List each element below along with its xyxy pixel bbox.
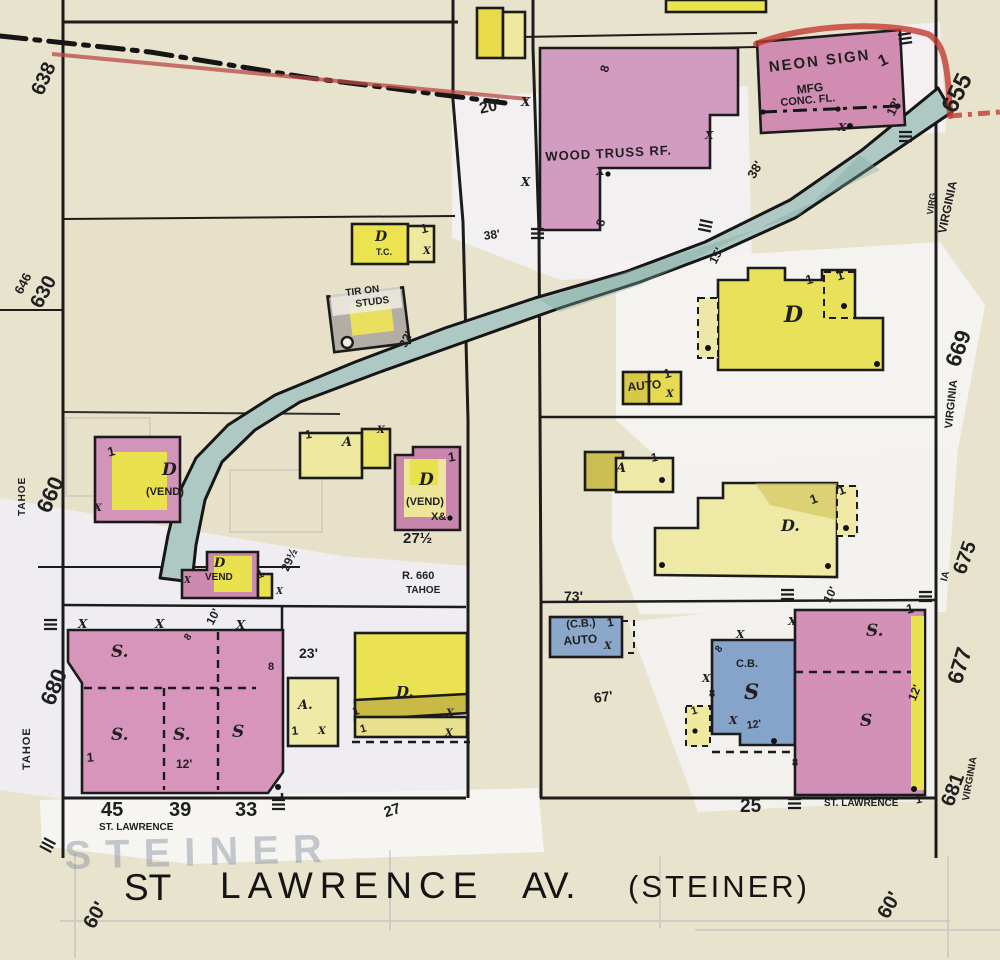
street-name-st: ST — [124, 869, 171, 906]
dim-12ft: 12' — [746, 719, 762, 732]
x-mark: X — [838, 122, 847, 133]
cb-auto-label: (C.B.) — [566, 618, 596, 631]
auto-label: AUTO — [627, 378, 662, 393]
tc-label: T.C. — [376, 248, 392, 257]
x-mark: X — [377, 426, 385, 436]
auto-house-letter: A — [616, 462, 626, 475]
address-33: 33 — [235, 800, 257, 820]
dim-23ft: 23' — [299, 646, 318, 660]
x-mark: X — [318, 727, 326, 737]
store-letter: S. — [111, 727, 129, 744]
x-mark: X — [702, 673, 711, 684]
street-name-lawrence: LAWRENCE — [220, 867, 484, 904]
x-mark: X — [446, 709, 454, 719]
store-letter: S — [860, 713, 872, 730]
auto-house-letter: A. — [298, 699, 313, 712]
vend-label: VEND — [205, 573, 233, 583]
dwelling-letter: D — [375, 230, 387, 244]
dim-8: 8 — [792, 758, 798, 769]
dim-12ft: 12' — [176, 758, 192, 770]
x-mark: X — [445, 729, 453, 739]
vend-label: (VEND) — [146, 487, 184, 498]
dim-38ft: 38' — [483, 228, 501, 242]
dwelling-letter: D. — [781, 518, 800, 534]
building-neon-sign-mfg — [757, 30, 905, 133]
x-mark: X — [666, 390, 674, 400]
building-frame-small-top — [477, 8, 503, 58]
store-letter: S. — [173, 727, 191, 744]
street-label-tahoe: TAHOE — [22, 727, 33, 770]
store-letter: S. — [866, 623, 884, 640]
building-annex-yellow — [686, 706, 710, 746]
x-mark: X — [705, 130, 714, 141]
vend-label: (VEND) — [406, 497, 444, 508]
building-s-stores-right — [795, 610, 925, 795]
dwelling-letter: D — [214, 557, 225, 570]
story-count: 1 — [606, 616, 615, 629]
street-label-tahoe: TAHOE — [18, 477, 28, 516]
address-45: 45 — [101, 800, 123, 820]
story-count: 1 — [304, 428, 313, 441]
x-mark: X — [423, 247, 431, 257]
x-mark: X — [596, 166, 605, 177]
x-mark: X — [78, 618, 87, 630]
dim-73ft: 73' — [564, 589, 583, 603]
dwelling-letter: D — [162, 462, 177, 479]
address-39: 39 — [169, 800, 191, 820]
dwelling-letter: D — [419, 472, 434, 489]
x-mark: X — [155, 618, 164, 630]
building-frame-top-right — [666, 0, 766, 12]
story-count: 1 — [650, 451, 659, 464]
x-mark: X — [236, 619, 245, 631]
x-mark: X — [604, 642, 612, 652]
dim-27half: 27½ — [403, 531, 432, 546]
r660-note: R. 660 — [402, 571, 434, 582]
street-name-av: AV. — [522, 867, 576, 904]
x-amp-mark: X& — [431, 512, 446, 523]
x-mark: X — [184, 577, 191, 586]
dwelling-letter: D — [784, 304, 803, 326]
x-mark: X — [94, 504, 102, 514]
x-mark: X — [521, 96, 530, 108]
x-mark: X — [729, 715, 738, 726]
store-letter: S. — [111, 644, 129, 661]
dim-8: 8 — [709, 689, 715, 700]
story-count: 1 — [86, 750, 94, 764]
x-mark: X — [521, 176, 530, 188]
dim-8: 8 — [268, 662, 274, 673]
map-artwork — [0, 0, 1000, 960]
x-mark: X — [276, 588, 283, 597]
store-letter: S — [744, 681, 759, 702]
dim-67ft: 67' — [593, 688, 614, 704]
street-label-tahoe: TAHOE — [406, 586, 440, 596]
store-letter: S — [232, 724, 244, 741]
cb-label: C.B. — [736, 659, 758, 670]
story-count: 1 — [291, 724, 299, 737]
auto-house-letter: A — [342, 436, 352, 449]
street-name-steiner: (STEINER) — [628, 871, 810, 902]
sanborn-map-canvas: 638 646 630 TAHOE 660 680 TAHOE 60' 655 … — [0, 0, 1000, 960]
auto-label: AUTO — [563, 633, 598, 647]
street-label-st-lawrence: ST. LAWRENCE — [824, 799, 898, 809]
dwelling-letter: D. — [396, 685, 414, 700]
address-25: 25 — [740, 797, 761, 816]
x-mark: X — [788, 616, 797, 627]
x-mark: X — [736, 629, 745, 640]
